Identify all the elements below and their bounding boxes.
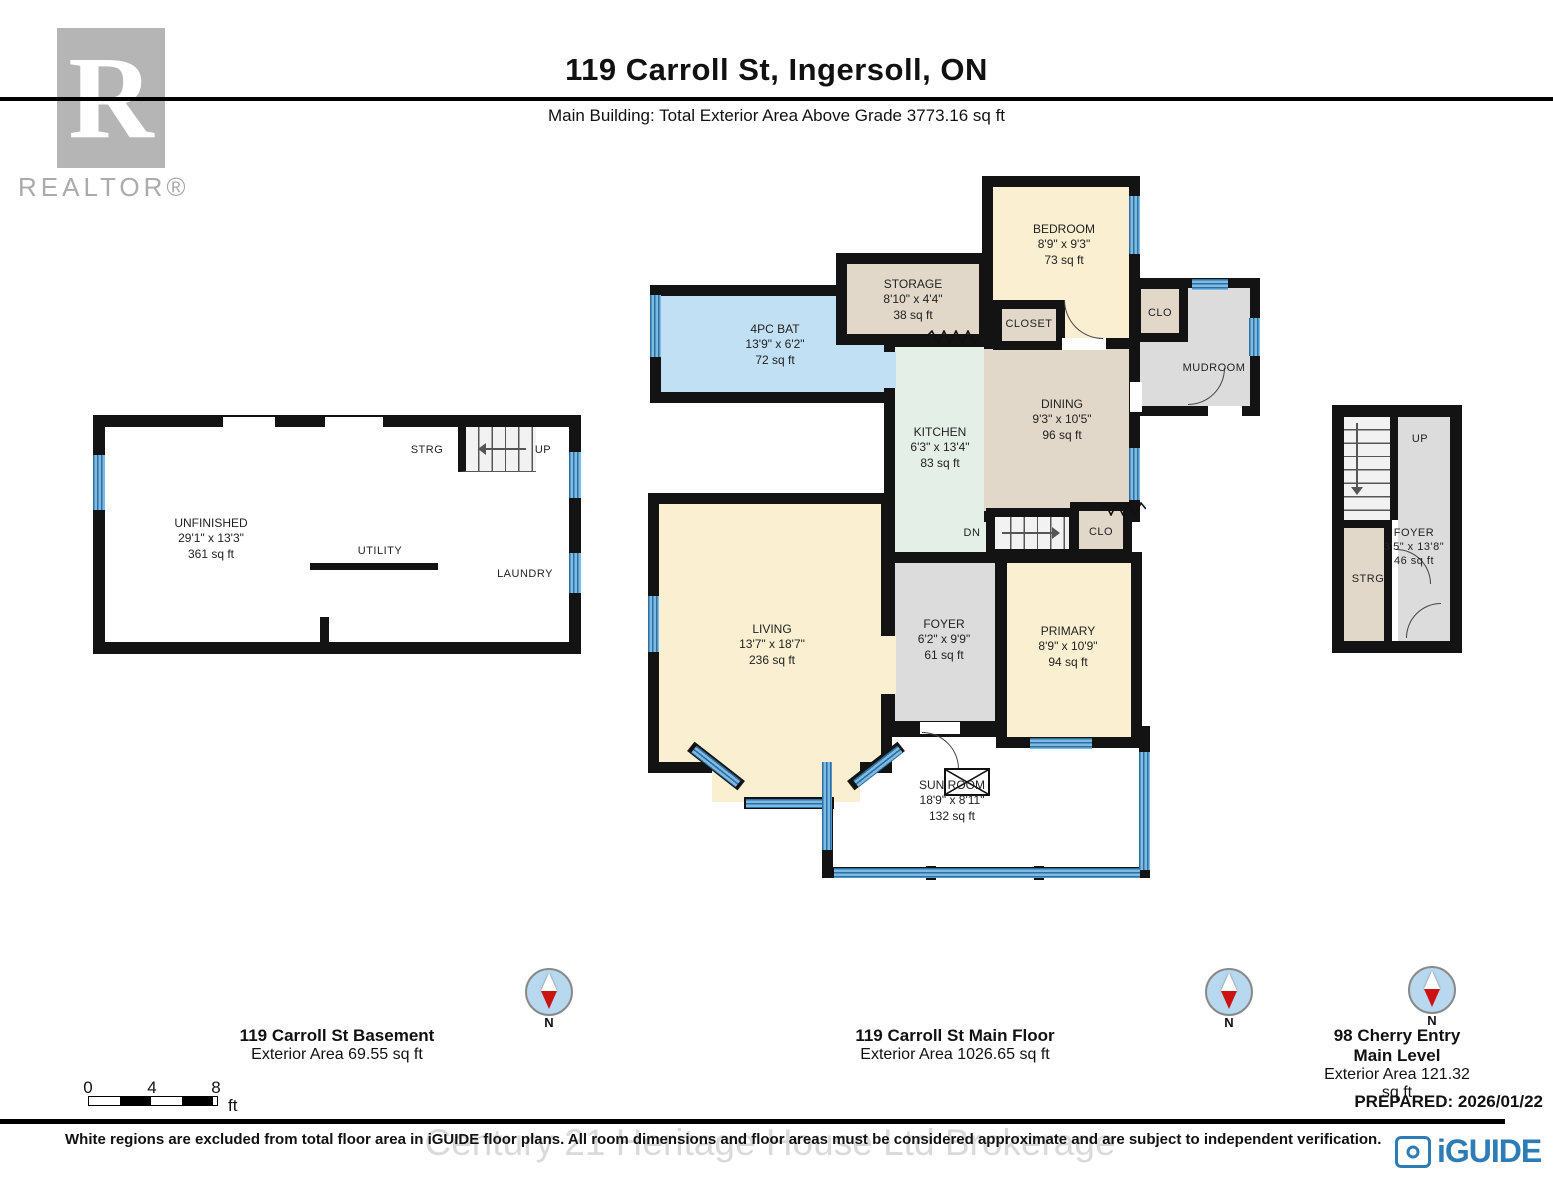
- door-opening: [880, 636, 896, 694]
- window-icon: [1192, 279, 1228, 290]
- room-label-dining: DINING 9'3" x 10'5" 96 sq ft: [1032, 397, 1091, 443]
- scale-tick: 0: [83, 1078, 92, 1098]
- room-label-sunroom: SUN ROOM 18'9" x 8'11" 132 sq ft: [919, 778, 985, 824]
- room-name: PRIMARY: [1038, 624, 1097, 639]
- stairs-up-label: UP: [1412, 432, 1428, 446]
- room-name: MUDROOM: [1183, 361, 1246, 375]
- door-opening: [1062, 338, 1106, 350]
- compass-north-label: N: [1224, 1015, 1233, 1030]
- page-subtitle: Main Building: Total Exterior Area Above…: [0, 106, 1553, 126]
- room-name: BEDROOM: [1033, 222, 1095, 237]
- window-icon: [834, 868, 1140, 878]
- caption-title: 98 Cherry Entry Main Level: [1319, 1026, 1475, 1066]
- stairs-down: [998, 517, 1066, 549]
- room-dims: 18'9" x 8'11": [919, 793, 985, 808]
- room-dims: 6'3" x 13'4": [910, 440, 969, 455]
- room-label-cherry-strg: STRG: [1352, 572, 1385, 586]
- room-area: 46 sq ft: [1384, 554, 1444, 568]
- room-label-clo-top: CLO: [1148, 306, 1172, 320]
- room-dims: 6'2" x 9'9": [918, 632, 970, 647]
- scale-unit: ft: [228, 1096, 237, 1116]
- caption-title: 119 Carroll St Main Floor: [855, 1026, 1054, 1046]
- compass-needle-white: [1221, 973, 1237, 991]
- room-label-storage: STORAGE 8'10" x 4'4" 38 sq ft: [883, 277, 942, 323]
- room-name: FOYER: [1384, 526, 1444, 540]
- stairs-cherry: [1344, 417, 1398, 520]
- heater-zigzag-icon: [1100, 502, 1146, 521]
- room-dims: 9'3" x 10'5": [1032, 412, 1091, 427]
- stairs-down-label: DN: [964, 526, 981, 540]
- room-label-closet: CLOSET: [1005, 317, 1052, 331]
- compass-needle-white: [541, 973, 557, 991]
- window-icon: [746, 799, 832, 808]
- room-name: CLO: [1148, 306, 1172, 320]
- realtor-wordmark: REALTOR®: [18, 172, 190, 203]
- room-area: 94 sq ft: [1038, 655, 1097, 670]
- compass-icon: N: [525, 968, 573, 1016]
- room-name: DN: [964, 526, 981, 540]
- room-name: FOYER: [918, 617, 970, 632]
- scale-ticks: 0 4 8: [88, 1078, 216, 1096]
- room-name: DINING: [1032, 397, 1091, 412]
- floor-plan-main: 4PC BAT 13'9" x 6'2" 72 sq ft STORAGE 8'…: [0, 0, 1553, 1200]
- room-dims: 8'10" x 4'4": [883, 292, 942, 307]
- floor-plan-cherry-entry: UP FOYER 3'5" x 13'8" 46 sq ft STRG: [1332, 405, 1462, 653]
- room-label-foyer: FOYER 6'2" x 9'9" 61 sq ft: [918, 617, 970, 663]
- room-area: 61 sq ft: [918, 648, 970, 663]
- room-dims: 8'9" x 9'3": [1033, 237, 1095, 252]
- scale-tick: 8: [211, 1078, 220, 1098]
- compass-needle-red: [1221, 991, 1237, 1009]
- window-icon: [822, 762, 832, 850]
- room-name: SUN ROOM: [919, 778, 985, 793]
- room-label-cherry-foyer: FOYER 3'5" x 13'8" 46 sq ft: [1384, 526, 1444, 568]
- caption-basement: 119 Carroll St Basement Exterior Area 69…: [240, 1026, 435, 1064]
- window-icon: [650, 295, 661, 357]
- page-title: 119 Carroll St, Ingersoll, ON: [0, 52, 1553, 88]
- room-area: 96 sq ft: [1032, 428, 1091, 443]
- compass-north-label: N: [544, 1015, 553, 1030]
- iguide-logo: iGUIDE: [1395, 1133, 1541, 1170]
- door-opening: [1130, 382, 1142, 412]
- compass-needle-red: [541, 991, 557, 1009]
- room-name: CLOSET: [1005, 317, 1052, 331]
- heater-zigzag-icon: [926, 330, 980, 349]
- room-label-bath: 4PC BAT 13'9" x 6'2" 72 sq ft: [745, 322, 804, 368]
- title-divider-line: [0, 97, 1553, 101]
- footer-divider-line: [0, 1119, 1505, 1124]
- door-opening: [884, 352, 896, 388]
- room-area: 132 sq ft: [919, 809, 985, 824]
- room-label-living: LIVING 13'7" x 18'7" 236 sq ft: [739, 622, 805, 668]
- room-name: CLO: [1089, 525, 1113, 539]
- caption-main-floor: 119 Carroll St Main Floor Exterior Area …: [855, 1026, 1054, 1064]
- scale-tick: 4: [147, 1078, 156, 1098]
- caption-title: 119 Carroll St Basement: [240, 1026, 435, 1046]
- room-area: 83 sq ft: [910, 456, 969, 471]
- window-icon: [1129, 448, 1140, 500]
- iguide-camera-icon: [1395, 1136, 1431, 1168]
- caption-cherry-entry: 98 Cherry Entry Main Level Exterior Area…: [1319, 1026, 1475, 1102]
- compass-icon: N: [1408, 966, 1456, 1014]
- room-area: 236 sq ft: [739, 653, 805, 668]
- disclaimer-text: White regions are excluded from total fl…: [65, 1131, 1381, 1148]
- room-label-bedroom: BEDROOM 8'9" x 9'3" 73 sq ft: [1033, 222, 1095, 268]
- room-name: STRG: [1352, 572, 1385, 586]
- window-icon: [1249, 318, 1260, 356]
- window-icon: [1139, 752, 1150, 870]
- room-area: 38 sq ft: [883, 308, 942, 323]
- window-icon: [1030, 738, 1092, 749]
- room-name: UP: [1412, 432, 1428, 446]
- door-opening: [1208, 406, 1242, 418]
- room-name: 4PC BAT: [745, 322, 804, 337]
- room-dims: 8'9" x 10'9": [1038, 639, 1097, 654]
- room-name: STORAGE: [883, 277, 942, 292]
- room-dims: 3'5" x 13'8": [1384, 540, 1444, 554]
- compass-needle-white: [1424, 971, 1440, 989]
- room-dims: 13'9" x 6'2": [745, 337, 804, 352]
- room-label-mudroom: MUDROOM: [1183, 361, 1246, 375]
- room-label-clo-mid: CLO: [1089, 525, 1113, 539]
- room-name: LIVING: [739, 622, 805, 637]
- caption-area: Exterior Area 1026.65 sq ft: [855, 1046, 1054, 1064]
- window-icon: [1129, 196, 1140, 254]
- compass-needle-red: [1424, 989, 1440, 1007]
- room-area: 73 sq ft: [1033, 253, 1095, 268]
- room-name: KITCHEN: [910, 425, 969, 440]
- scale-bar: 0 4 8 ft: [88, 1078, 218, 1106]
- prepared-date: PREPARED: 2026/01/22: [1354, 1092, 1543, 1112]
- iguide-wordmark: iGUIDE: [1437, 1133, 1541, 1170]
- compass-icon: N: [1205, 968, 1253, 1016]
- room-label-kitchen: KITCHEN 6'3" x 13'4" 83 sq ft: [910, 425, 969, 471]
- room-area: 72 sq ft: [745, 353, 804, 368]
- room-dims: 13'7" x 18'7": [739, 637, 805, 652]
- room-label-primary: PRIMARY 8'9" x 10'9" 94 sq ft: [1038, 624, 1097, 670]
- caption-area: Exterior Area 69.55 sq ft: [240, 1046, 435, 1064]
- window-icon: [648, 596, 659, 652]
